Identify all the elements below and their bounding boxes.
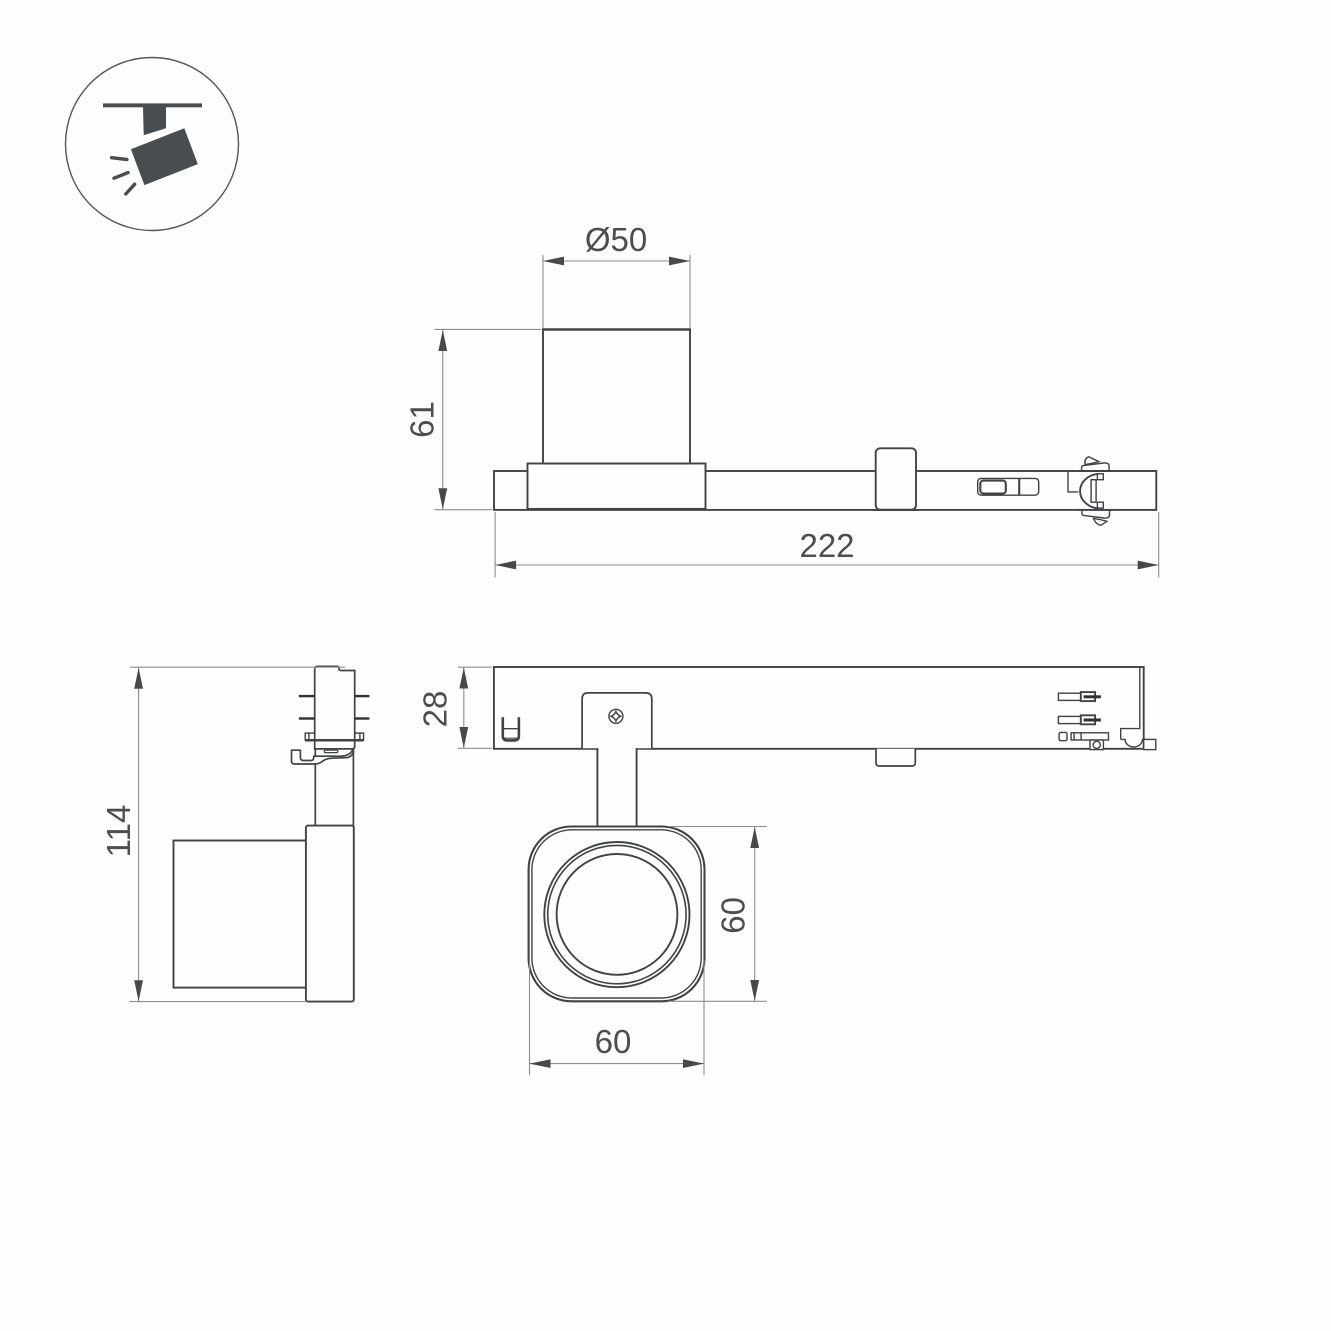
svg-text:61: 61 [404,401,441,438]
svg-text:Ø50: Ø50 [585,221,647,258]
svg-text:60: 60 [714,897,751,934]
svg-text:222: 222 [799,527,854,564]
svg-text:114: 114 [100,805,137,858]
svg-text:28: 28 [417,691,454,728]
svg-text:60: 60 [595,1023,632,1060]
